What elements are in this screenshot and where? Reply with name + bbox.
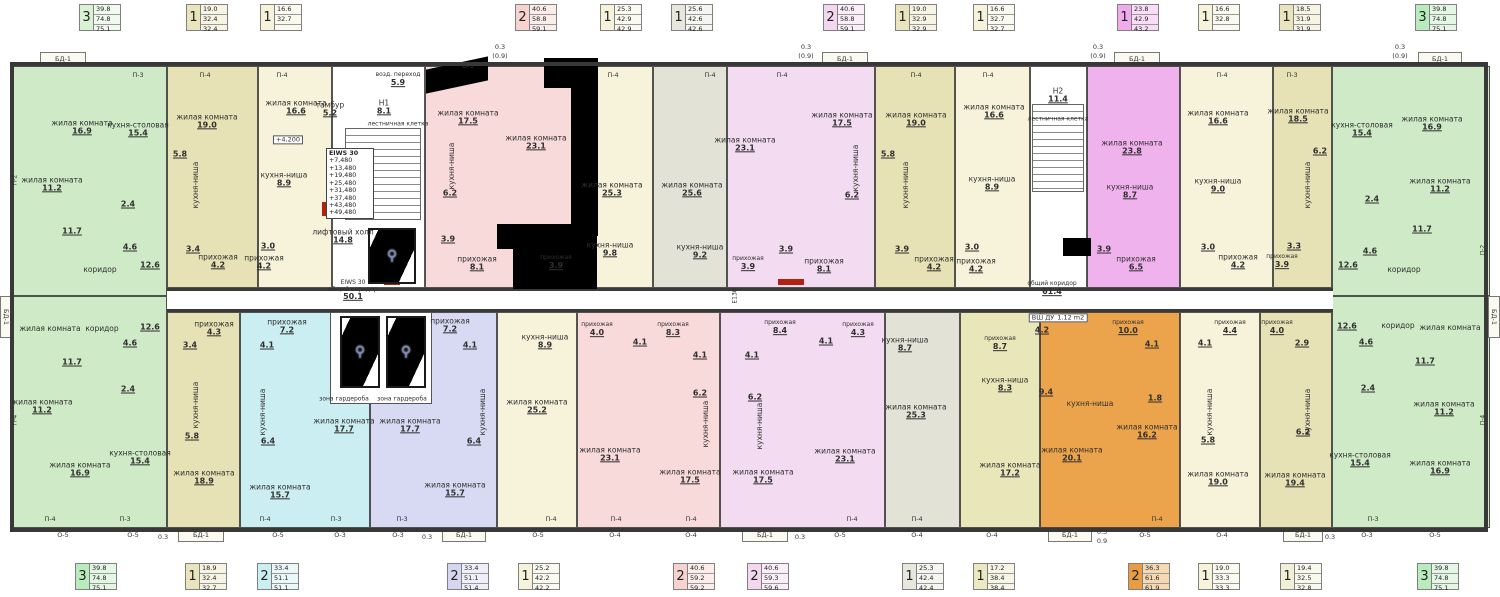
room-label: 2.4	[121, 386, 135, 395]
room-label: жилая комната11.2	[11, 398, 72, 415]
balcony-bd1: БД-1	[1283, 528, 1323, 542]
legend-areas: 16.632.732.7	[988, 5, 1014, 30]
room-area: 4.2	[244, 263, 283, 272]
room-label: 3.3	[1287, 243, 1301, 252]
legend-areas: 16.632.8	[1213, 5, 1239, 30]
room-label: П-2	[1481, 245, 1488, 256]
room-area: 23.8	[1101, 148, 1162, 157]
legend-area-value: 40.6	[762, 564, 788, 574]
legend-apartment-box: 116.632.732.7	[973, 4, 1015, 31]
legend-apartment-box: 339.874.875.1	[1415, 4, 1457, 31]
room-label: 3.0	[965, 244, 979, 253]
legend-room-count: 2	[748, 564, 762, 589]
elevation-mark: EIWS 30	[329, 150, 371, 157]
facade-element-label: О-4	[986, 531, 998, 539]
room-area: 4.1	[745, 352, 759, 361]
room-area: 8.3	[982, 385, 1029, 394]
legend-area-value: 32.7	[275, 15, 301, 25]
room-area: 17.5	[437, 118, 498, 127]
room-area: 3.0	[1201, 244, 1215, 253]
legend-area-value	[275, 25, 301, 30]
legend-apartment-box: 125.342.942.9	[600, 4, 642, 31]
room-label: кухня-ниша9.2	[677, 243, 724, 260]
room-label: 2.4	[1365, 196, 1379, 205]
room-label: Н18.1	[377, 99, 391, 116]
legend-area-value: 38.4	[988, 584, 1014, 593]
room-label: 11.7	[1415, 358, 1435, 367]
room-area: 17.7	[379, 426, 440, 435]
room-label: лифтовый холл14.8	[312, 228, 373, 245]
room-label: 4.2	[1035, 327, 1049, 336]
legend-area-value: 33.4	[462, 564, 488, 574]
room-label: прихожая3.9	[540, 255, 572, 271]
room-label: жилая комната16.9	[51, 119, 112, 136]
room-area: 6.2	[443, 190, 457, 199]
legend-apartment-box: 339.874.875.1	[75, 563, 117, 590]
room-area: 4.1	[1145, 341, 1159, 350]
room-area: 2.4	[121, 386, 135, 395]
legend-area-value: 16.6	[1213, 5, 1239, 15]
legend-area-value: 39.8	[1430, 5, 1456, 15]
legend-room-count: 2	[824, 5, 838, 30]
room-label: 4.1	[633, 339, 647, 348]
room-name: жилая комната	[19, 325, 80, 333]
legend-area-value: 58.8	[530, 15, 556, 25]
legend-area-value: 33.3	[1213, 584, 1239, 593]
facade-element-label: П-4	[1216, 71, 1227, 79]
room-label: прихожая4.2	[956, 257, 995, 274]
elevation-mark: +25,480	[329, 180, 371, 187]
room-label: прихожая10.0	[1112, 320, 1144, 336]
balcony-bd1: БД-1	[742, 528, 788, 542]
floor-plan-page: ⚲⚲⚲БД-1БД-1БД-1БД-1БД-1БД-1БД-1БД-1БД-1Б…	[0, 0, 1500, 597]
room-area: 4.1	[819, 338, 833, 347]
shaft-void	[497, 224, 597, 249]
elevator-shaft: ⚲	[368, 228, 416, 284]
room-label: 4.1	[819, 338, 833, 347]
legend-area-value: 16.6	[988, 5, 1014, 15]
room-label: жилая комната15.7	[424, 481, 485, 498]
room-label: 6.4	[261, 438, 275, 447]
room-label: EIWS 30общий коридор50.1	[328, 280, 377, 302]
room-area: 18.5	[1267, 116, 1328, 125]
legend-area-value: 42.2	[533, 574, 559, 584]
room-label: кухня-ниша9.8	[587, 241, 634, 258]
legend-areas: 25.242.242.2	[533, 564, 559, 589]
legend-areas: 40.659.359.6	[762, 564, 788, 589]
room-label: 5.8	[173, 151, 187, 160]
room-area: 4.6	[123, 340, 137, 349]
legend-areas: 19.033.333.3	[1213, 564, 1239, 589]
room-label: 2.4	[1361, 385, 1375, 394]
room-area: 19.4	[1264, 480, 1325, 489]
room-area: 9.8	[587, 250, 634, 259]
facade-element-label: П-3	[1367, 515, 1378, 523]
room-label: кухня-ниша	[902, 162, 910, 209]
legend-room-count: 3	[1418, 564, 1432, 589]
facade-element-label: О-5	[57, 531, 69, 539]
room-label: 2.9	[1295, 340, 1309, 349]
legend-room-count: 1	[1281, 564, 1295, 589]
room-area: 17.5	[732, 477, 793, 486]
room-label: 3.9	[441, 236, 455, 245]
room-label: кухня-ниша8.7	[882, 336, 929, 353]
room-name: зона гардероба	[377, 397, 427, 404]
room-label: 4.6	[1359, 339, 1373, 348]
room-label: жилая комната19.4	[1264, 471, 1325, 488]
room-area: 16.6	[1187, 118, 1248, 127]
room-label: кухня-ниша8.9	[261, 171, 308, 188]
room-label: кухня-ниша	[1206, 389, 1214, 436]
legend-area-value: 59.6	[762, 584, 788, 593]
room-label: общий коридор61.4	[1027, 281, 1076, 297]
legend-area-value: 32.9	[910, 15, 936, 25]
room-area: 50.1	[328, 293, 377, 302]
legend-area-value: 40.6	[838, 5, 864, 15]
room-area: 8.7	[984, 343, 1016, 352]
facade-element-label: О-4	[1216, 531, 1228, 539]
legend-areas: 39.874.875.1	[1432, 564, 1458, 589]
room-area: 17.2	[979, 470, 1040, 479]
facade-element-label: П-4	[44, 515, 55, 523]
legend-area-value: 19.0	[201, 5, 227, 15]
room-label: прихожая4.3	[842, 322, 874, 338]
room-area: 11.4	[1048, 96, 1068, 105]
room-label: П-4	[13, 415, 20, 426]
room-label: жилая комната19.0	[1187, 470, 1248, 487]
legend-area-value: 74.8	[1430, 15, 1456, 25]
legend-room-count: 1	[974, 5, 988, 30]
balcony-bd1: БД-1	[178, 528, 224, 542]
room-area: 11.7	[1415, 358, 1435, 367]
room-area: 16.9	[1401, 124, 1462, 133]
room-area: 19.0	[1187, 479, 1248, 488]
room-label: жилая комната	[19, 325, 80, 333]
legend-area-value: 74.8	[94, 15, 120, 25]
elevation-mark: +7,480	[329, 157, 371, 164]
room-area: 10.0	[1112, 327, 1144, 336]
room-area: 4.3	[194, 329, 233, 338]
room-area: 4.2	[1218, 262, 1257, 271]
room-area: 4.1	[693, 352, 707, 361]
room-area: 2.4	[121, 201, 135, 210]
legend-area-value: 59.2	[688, 584, 714, 593]
room-label: кухня-ниша	[756, 403, 764, 450]
legend-area-value: 18.9	[200, 564, 226, 574]
legend-area-value: 39.8	[90, 564, 116, 574]
room-label: зона гардероба	[319, 397, 369, 404]
legend-area-value: 51.4	[462, 584, 488, 593]
room-label: жилая комната17.7	[313, 417, 374, 434]
room-name: коридор	[1381, 322, 1414, 330]
room-label: коридор	[1381, 322, 1414, 330]
legend-apartment-box: 116.632.7	[260, 4, 302, 31]
legend-area-value: 61.9	[1143, 584, 1169, 593]
legend-area-value	[1213, 25, 1239, 30]
room-area: 3.0	[965, 244, 979, 253]
room-label: жилая комната17.5	[437, 109, 498, 126]
legend-area-value: 32.7	[988, 15, 1014, 25]
legend-area-value: 32.9	[910, 25, 936, 34]
legend-area-value: 25.3	[917, 564, 943, 574]
legend-area-value: 42.9	[615, 25, 641, 34]
facade-element-label: (0.9)	[1090, 52, 1105, 60]
legend-apartment-box: 240.658.859.1	[823, 4, 865, 31]
room-label: П-2	[13, 175, 20, 186]
legend-areas: 33.451.151.4	[462, 564, 488, 589]
room-area: 15.7	[424, 490, 485, 499]
room-area: 17.5	[811, 120, 872, 129]
balcony-bd1: БД-1	[1418, 52, 1462, 66]
elevator-shaft: ⚲	[340, 316, 380, 388]
facade-element-label: О-3	[462, 62, 474, 70]
legend-apartment-box: 240.659.359.6	[747, 563, 789, 590]
legend-area-value: 25.2	[533, 564, 559, 574]
room-area: 4.2	[914, 264, 953, 273]
facade-element-label: 0.9	[1097, 537, 1107, 545]
legend-room-count: 1	[1199, 564, 1213, 589]
legend-areas: 23.842.943.2	[1132, 5, 1158, 30]
room-area: 4.3	[842, 329, 874, 338]
room-name: кухня-ниша	[192, 382, 200, 429]
room-name: кухня-ниша	[448, 143, 456, 190]
room-label: 12.6	[1338, 262, 1358, 271]
room-label: 6.2	[1296, 429, 1310, 438]
room-area: 16.9	[1409, 468, 1470, 477]
legend-room-count: 1	[974, 564, 988, 589]
room-label: прихожая8.4	[764, 320, 796, 336]
room-area: 17.5	[659, 477, 720, 486]
room-area: 3.4	[183, 342, 197, 351]
facade-element-label: 0.3	[1395, 43, 1405, 51]
legend-areas: 39.874.875.1	[1430, 5, 1456, 30]
fire-equipment-mark	[778, 279, 804, 285]
balcony-bd1: БД-1	[40, 52, 86, 66]
legend-area-value: 32.4	[201, 25, 227, 34]
room-label: 9.4	[1039, 389, 1053, 398]
room-label: 3.0	[261, 243, 275, 252]
room-area: 16.2	[1116, 432, 1177, 441]
room-area: 11.7	[1412, 226, 1432, 235]
room-area: 11.7	[62, 359, 82, 368]
legend-area-value: 32.4	[201, 15, 227, 25]
shaft-void	[571, 84, 598, 236]
facade-element-label: О-3	[334, 531, 346, 539]
legend-apartment-box: 119.033.333.3	[1198, 563, 1240, 590]
room-label: коридор	[83, 266, 116, 274]
legend-areas: 25.342.442.4	[917, 564, 943, 589]
room-name: кухня-ниша	[1304, 162, 1312, 209]
legend-area-value: 39.8	[94, 5, 120, 15]
room-area: 3.9	[895, 246, 909, 255]
room-label: прихожая4.4	[1214, 320, 1246, 336]
room-name: кухня-ниша	[1206, 389, 1214, 436]
room-area: 11.2	[1409, 186, 1470, 195]
legend-apartment-box: 236.361.661.9	[1128, 563, 1170, 590]
room-label: кухня-ниша9.0	[1195, 177, 1242, 194]
facade-element-label: О-4	[911, 531, 923, 539]
facade-element-label: П-3	[330, 515, 341, 523]
room-area: 6.2	[1296, 429, 1310, 438]
legend-area-value: 38.4	[988, 574, 1014, 584]
room-label: жилая комната19.0	[885, 111, 946, 128]
legend-room-count: 2	[674, 564, 688, 589]
room-label: кухня-ниша8.9	[522, 333, 569, 350]
room-area: 3.9	[540, 262, 572, 271]
room-area: 6.2	[1313, 148, 1327, 157]
facade-element-label: О-5	[127, 531, 139, 539]
legend-apartment-box: 339.874.875.1	[79, 4, 121, 31]
elevation-marks-box: EIWS 30+7,480+13,480+19,480+25,480+31,48…	[326, 148, 374, 219]
legend-apartment-box: 125.242.242.2	[518, 563, 560, 590]
room-area: 23.1	[579, 455, 640, 464]
legend-area-value: 33.3	[1213, 574, 1239, 584]
facade-element-label: 0.3	[801, 43, 811, 51]
facade-element-label: П-3	[1286, 71, 1297, 79]
legend-area-value: 32.8	[1213, 15, 1239, 25]
legend-areas: 40.658.859.1	[530, 5, 556, 30]
legend-area-value: 75.1	[94, 25, 120, 34]
facade-element-label: (0.9)	[798, 52, 813, 60]
facade-element-label: П-3	[119, 515, 130, 523]
room-label: жилая комната25.2	[506, 398, 567, 415]
facade-element-label: П-4	[846, 515, 857, 523]
room-area: 25.3	[885, 412, 946, 421]
room-label: 4.6	[123, 340, 137, 349]
room-label: кухня-ниша8.9	[969, 175, 1016, 192]
room-name: П-2	[13, 175, 20, 186]
room-label: кухня-столовая15.4	[1329, 451, 1391, 468]
facade-element-label: П-4	[911, 515, 922, 523]
room-label: 4.6	[123, 244, 137, 253]
room-label: жилая комната17.5	[659, 468, 720, 485]
floor-plan: ⚲⚲⚲БД-1БД-1БД-1БД-1БД-1БД-1БД-1БД-1БД-1Б…	[0, 0, 1500, 597]
room-area: 8.3	[657, 329, 689, 338]
room-label: прихожая4.2	[198, 253, 237, 270]
room-area: 5.8	[881, 151, 895, 160]
elevator-icon: ⚲	[401, 345, 411, 359]
elevator-shaft: ⚲	[386, 316, 426, 388]
room-label: кухня-столовая15.4	[107, 121, 169, 138]
legend-areas: 19.032.432.4	[201, 5, 227, 30]
room-area: 23.1	[714, 145, 775, 154]
room-label: кухня-столовая15.4	[1331, 121, 1393, 138]
room-label: 4.1	[1198, 340, 1212, 349]
room-area: 16.6	[963, 112, 1024, 121]
legend-area-value: 51.1	[272, 574, 298, 584]
room-area: 5.2	[316, 110, 344, 119]
room-label: кухня-ниша	[479, 389, 487, 436]
room-area: 4.0	[1261, 327, 1293, 336]
legend-areas: 40.659.259.2	[688, 564, 714, 589]
room-label: коридор	[1387, 266, 1420, 274]
room-area: 12.6	[140, 324, 160, 333]
room-label: 6.2	[845, 192, 859, 201]
facade-element-label: О-5	[1429, 531, 1441, 539]
room-area: 5.8	[1201, 437, 1215, 446]
room-label: 5.8	[1201, 437, 1215, 446]
room-name: коридор	[85, 325, 118, 333]
room-name: жилая комната	[1419, 324, 1480, 332]
room-area: 15.4	[109, 458, 171, 467]
legend-apartment-box: 233.451.151.4	[447, 563, 489, 590]
room-area: 8.4	[764, 327, 796, 336]
room-area: 9.0	[1195, 186, 1242, 195]
room-label: жилая комната20.1	[1041, 446, 1102, 463]
room-label: прихожая4.2	[1218, 253, 1257, 270]
legend-area-value: 32.7	[988, 25, 1014, 34]
room-label: 4.6	[1363, 248, 1377, 257]
room-name: кухня-ниша	[756, 403, 764, 450]
room-area: 3.0	[261, 243, 275, 252]
facade-element-label: 0.3	[1093, 43, 1103, 51]
facade-element-label: 0.3	[422, 533, 432, 541]
room-label: жилая комната17.2	[979, 461, 1040, 478]
room-area: 6.2	[845, 192, 859, 201]
legend-area-value: 31.9	[1294, 15, 1320, 25]
room-label: жилая комната11.2	[1413, 400, 1474, 417]
facade-element-label: О-3	[1361, 531, 1373, 539]
legend-area-value: 61.6	[1143, 574, 1169, 584]
room-label: 5.8	[881, 151, 895, 160]
room-area: 8.9	[969, 184, 1016, 193]
room-area: 12.6	[1338, 262, 1358, 271]
legend-area-value: 43.2	[1132, 25, 1158, 34]
room-label: кухня-ниша	[192, 382, 200, 429]
room-label: жилая комната16.9	[1409, 459, 1470, 476]
facade-element-label: О-4	[609, 531, 621, 539]
legend-areas: 16.632.7	[275, 5, 301, 30]
room-label: жилая комната18.9	[173, 469, 234, 486]
room-label: жилая комната23.1	[579, 446, 640, 463]
room-area: 3.3	[1287, 243, 1301, 252]
room-label: жилая комната16.6	[1187, 109, 1248, 126]
room-name: кухня-ниша	[902, 162, 910, 209]
legend-room-count: 1	[1280, 5, 1294, 30]
room-area: 19.0	[885, 120, 946, 129]
room-label: 3.9	[779, 246, 793, 255]
elevation-mark: +13,480	[329, 165, 371, 172]
facade-element-label: О-4	[685, 531, 697, 539]
room-area: 4.1	[1198, 340, 1212, 349]
legend-area-value: 75.1	[1430, 25, 1456, 34]
legend-room-count: 1	[903, 564, 917, 589]
room-label: кухня-ниша	[702, 401, 710, 448]
room-label: жилая комната	[1419, 324, 1480, 332]
room-name: +4,200	[276, 136, 300, 143]
room-area: 25.3	[581, 190, 642, 199]
room-area: 11.2	[21, 185, 82, 194]
room-name: Е130	[733, 288, 740, 303]
room-label: прихожая7.2	[267, 318, 306, 335]
room-label: тамбур5.2	[316, 101, 344, 118]
room-label: 4.1	[260, 342, 274, 351]
room-label: 12.6	[140, 262, 160, 271]
elevation-mark: +19,480	[329, 172, 371, 179]
room-label: 3.0	[1201, 244, 1215, 253]
room-label: возд. переход5.9	[376, 72, 421, 88]
legend-area-value: 51.1	[462, 574, 488, 584]
room-name: кухня-ниша	[192, 162, 200, 209]
legend-areas: 39.874.875.1	[90, 564, 116, 589]
facade-element-label: 0.3	[1097, 528, 1107, 536]
balcony-bd1: БД-1	[822, 52, 868, 66]
legend-room-count: 1	[672, 5, 686, 30]
legend-area-value: 42.6	[686, 15, 712, 25]
legend-area-value: 59.1	[530, 25, 556, 34]
room-label: Е130	[733, 288, 740, 303]
legend-areas: 19.432.532.8	[1295, 564, 1321, 589]
